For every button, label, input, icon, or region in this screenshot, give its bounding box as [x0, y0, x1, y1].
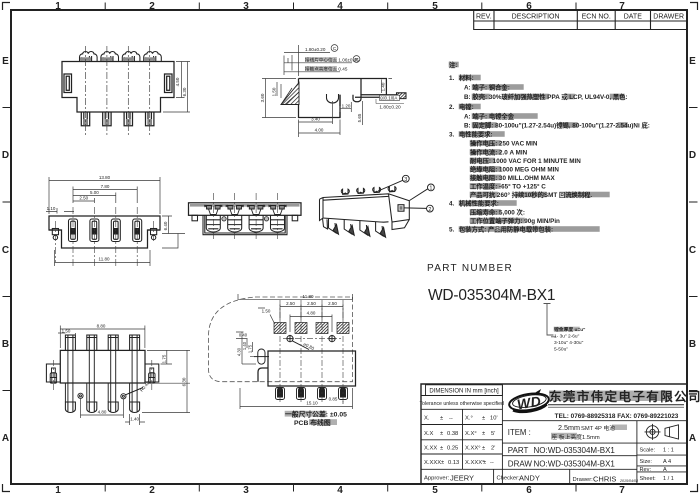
- svg-text:产品可抗 260° 持续10秒的SMT 回流焕制程.: 产品可抗 260° 持续10秒的SMT 回流焕制程.: [470, 190, 592, 199]
- svg-text:3-10u" 4-30u": 3-10u" 4-30u": [554, 340, 584, 346]
- svg-text:2: 2: [149, 485, 155, 495]
- svg-text:绝缘电阻: 1000 MEG OHM MIN: 绝缘电阻: 1000 MEG OHM MIN: [470, 165, 559, 174]
- svg-text:1- 3u" 2-6u": 1- 3u" 2-6u": [554, 334, 580, 340]
- svg-text:X.: X.: [424, 416, 430, 422]
- svg-text:3.: 3.: [449, 132, 455, 139]
- svg-text:5.00: 5.00: [90, 190, 99, 195]
- svg-text:X.°: X.°: [465, 416, 473, 422]
- svg-text:2015/04/08: 2015/04/08: [619, 479, 638, 483]
- svg-text:2': 2': [491, 446, 495, 452]
- svg-text:1.50: 1.50: [272, 87, 277, 96]
- svg-text:X.XXX: X.XXX: [424, 460, 441, 466]
- svg-text:11.80: 11.80: [99, 257, 110, 262]
- svg-text:4.30: 4.30: [237, 347, 242, 356]
- svg-text:3.60: 3.60: [260, 93, 265, 102]
- svg-text:6: 6: [526, 1, 532, 12]
- svg-text:DRAW: DRAW: [508, 459, 533, 468]
- svg-text:A: 端子: 铜合金:: A: 端子: 铜合金:: [464, 83, 510, 92]
- svg-text:1.80±0.20: 1.80±0.20: [305, 47, 326, 52]
- svg-text:3: 3: [404, 177, 407, 183]
- svg-text:X.XX: X.XX: [424, 446, 437, 452]
- svg-text:0.13: 0.13: [448, 460, 459, 466]
- svg-text:5.65: 5.65: [357, 113, 362, 122]
- svg-text:ITEM :: ITEM :: [508, 428, 531, 437]
- svg-text:E: E: [689, 56, 696, 67]
- svg-text:2: 2: [149, 1, 155, 12]
- svg-text:1.40: 1.40: [242, 341, 247, 350]
- svg-text:东莞市伟定电子有限公司: 东莞市伟定电子有限公司: [549, 389, 700, 404]
- svg-text:0.85: 0.85: [329, 397, 338, 402]
- svg-text:SMT 4P 电池: SMT 4P 电池: [581, 424, 615, 432]
- svg-text:5': 5': [491, 431, 495, 437]
- svg-text:Checker:: Checker:: [497, 476, 521, 482]
- svg-text:±: ±: [482, 416, 485, 422]
- svg-text:Rev:: Rev:: [640, 467, 652, 473]
- svg-text:0.25: 0.25: [447, 446, 458, 452]
- svg-text:11.80: 11.80: [303, 294, 314, 299]
- svg-text:A: A: [663, 467, 667, 473]
- svg-text:±: ±: [440, 446, 443, 452]
- svg-text:包装方式: 产品用防静电载带包装:: 包装方式: 产品用防静电载带包装:: [459, 225, 553, 234]
- svg-text:D: D: [689, 150, 696, 161]
- svg-text:机械性能要求:: 机械性能要求:: [459, 199, 499, 208]
- svg-text:6.30: 6.30: [182, 87, 187, 96]
- svg-text:电性能要求:: 电性能要求:: [459, 130, 493, 139]
- svg-text:座 板上高度1.5mm: 座 板上高度1.5mm: [551, 433, 599, 441]
- svg-text:1.20: 1.20: [342, 104, 351, 109]
- svg-text:±: ±: [482, 431, 485, 437]
- svg-text:±: ±: [440, 416, 443, 422]
- svg-text:6.40: 6.40: [163, 221, 168, 230]
- svg-text:7.80: 7.80: [101, 184, 110, 189]
- svg-text:7: 7: [619, 1, 625, 12]
- svg-text:NO:WD-035304M-BX1: NO:WD-035304M-BX1: [534, 446, 616, 455]
- svg-text:耐电压: 1000 VAC FOR 1 MINUTE MIN: 耐电压: 1000 VAC FOR 1 MINUTE MIN: [470, 156, 581, 165]
- svg-text:2.5mm: 2.5mm: [558, 423, 580, 432]
- svg-text:PART NUMBER: PART NUMBER: [427, 263, 513, 274]
- svg-text:一般尺寸公差: ±0.05: 一般尺寸公差: ±0.05: [285, 410, 347, 419]
- svg-text:1: 1: [429, 186, 432, 192]
- svg-text:Size:: Size:: [640, 459, 653, 465]
- svg-text:ECN NO.: ECN NO.: [582, 14, 611, 21]
- svg-text:Scale:: Scale:: [640, 448, 656, 454]
- svg-text:3.40: 3.40: [311, 117, 320, 122]
- svg-text:1.80±0.20: 1.80±0.20: [379, 105, 401, 111]
- svg-text:1.40: 1.40: [130, 417, 139, 422]
- svg-text:±: ±: [483, 460, 486, 466]
- svg-text:C: C: [689, 245, 696, 256]
- svg-text:15.10: 15.10: [306, 401, 318, 406]
- svg-text:B: B: [2, 339, 9, 350]
- svg-text:4.00: 4.00: [315, 128, 324, 133]
- svg-text:4: 4: [337, 1, 343, 12]
- svg-text:PART: PART: [508, 446, 529, 455]
- svg-text:1.10: 1.10: [47, 206, 56, 211]
- svg-text:1.: 1.: [449, 75, 455, 82]
- svg-text:DESCRIPTION: DESCRIPTION: [512, 14, 560, 21]
- svg-text:1: 1: [55, 1, 61, 12]
- svg-text:X.XX°: X.XX°: [465, 446, 481, 452]
- svg-text:TEL: 0769-88925318 FAX: 0769-: TEL: 0769-88925318 FAX: 0769-89221023: [555, 413, 679, 420]
- svg-text:JEERY: JEERY: [450, 474, 474, 483]
- svg-text:0.40: 0.40: [239, 333, 248, 338]
- svg-text:操作电压: 250 VAC MIN: 操作电压: 250 VAC MIN: [470, 139, 538, 148]
- svg-text:1 : 1: 1 : 1: [663, 448, 674, 454]
- svg-text:8.80: 8.80: [97, 324, 106, 329]
- svg-text:4.50: 4.50: [175, 77, 180, 86]
- svg-text:接线片中心位置 1.06±0.05: 接线片中心位置 1.06±0.05: [305, 56, 359, 63]
- svg-text:13.80: 13.80: [99, 175, 111, 180]
- svg-text:X.X°: X.X°: [465, 431, 477, 437]
- svg-text:--: --: [490, 460, 494, 466]
- svg-text:压缩寿命: 5,000 次:: 压缩寿命: 5,000 次:: [470, 208, 525, 217]
- svg-text:DRAWER: DRAWER: [653, 14, 684, 21]
- svg-text:NO:WD-035304M-BX1: NO:WD-035304M-BX1: [534, 459, 616, 468]
- svg-text:2.50: 2.50: [328, 301, 337, 306]
- svg-text:A: A: [689, 433, 696, 444]
- svg-text:0.38: 0.38: [447, 431, 458, 437]
- svg-text:6: 6: [526, 485, 532, 495]
- svg-text:4.80: 4.80: [98, 410, 107, 415]
- svg-text:2.50: 2.50: [79, 196, 88, 201]
- svg-text:1 / 1: 1 / 1: [663, 476, 674, 482]
- svg-text:2.: 2.: [449, 104, 455, 111]
- svg-text:5: 5: [432, 485, 438, 495]
- svg-text:C: C: [2, 245, 9, 256]
- svg-text:±: ±: [440, 431, 443, 437]
- svg-text:接触电阻: 30 MILL.OHM MAX: 接触电阻: 30 MILL.OHM MAX: [470, 173, 555, 182]
- svg-text:注:: 注:: [449, 60, 457, 69]
- svg-text:Tolerance unless otherwise spe: Tolerance unless otherwise specified: [419, 401, 504, 407]
- svg-text:CHRIS: CHRIS: [593, 475, 616, 484]
- svg-text:5.: 5.: [449, 227, 455, 234]
- svg-text:B: 胶壳: 30%玻纤加强热塑性 PPA 或 LCP, U: B: 胶壳: 30%玻纤加强热塑性 PPA 或 LCP, UL94V-0, 黑色…: [464, 92, 628, 101]
- svg-text:3: 3: [243, 485, 249, 495]
- svg-text:4.80: 4.80: [307, 311, 316, 316]
- svg-text:操作电流: 2.0 A MIN: 操作电流: 2.0 A MIN: [470, 148, 528, 157]
- svg-text:材料:: 材料:: [459, 73, 474, 82]
- svg-text:B: 固定脚: 80-100u"(1.27-2.54u)镗锡: B: 固定脚: 80-100u"(1.27-2.54u)镗锡, 80-100u"…: [464, 121, 650, 130]
- svg-text:1: 1: [55, 485, 61, 495]
- svg-text:X.X: X.X: [424, 431, 433, 437]
- svg-text:±: ±: [482, 446, 485, 452]
- svg-text:3: 3: [243, 1, 249, 12]
- svg-text:5-50u": 5-50u": [554, 347, 568, 353]
- svg-text:1.75: 1.75: [162, 354, 167, 363]
- svg-text:2.50: 2.50: [307, 301, 316, 306]
- svg-text:镗金厚度 u=u": 镗金厚度 u=u": [554, 326, 585, 333]
- svg-text:X.XXX°: X.XXX°: [465, 460, 484, 466]
- svg-text:E: E: [2, 56, 9, 67]
- svg-text:7: 7: [619, 485, 625, 495]
- svg-text:工作位置端子弹力: 90g MIN/Pin: 工作位置端子弹力: 90g MIN/Pin: [470, 216, 560, 225]
- svg-text:A: A: [2, 433, 9, 444]
- svg-text:ANDY: ANDY: [519, 474, 540, 483]
- svg-text:2: 2: [428, 207, 431, 213]
- svg-text:4.: 4.: [449, 201, 455, 208]
- svg-text:±: ±: [441, 460, 444, 466]
- svg-text:5: 5: [432, 1, 438, 12]
- svg-text:电镗:: 电镗:: [459, 102, 474, 111]
- svg-text:A 4: A 4: [663, 459, 671, 465]
- svg-text:DIMENSION IN mm [inch]: DIMENSION IN mm [inch]: [429, 389, 499, 395]
- svg-text:工作温度: -65° TO +125° C: 工作温度: -65° TO +125° C: [470, 182, 546, 191]
- svg-text:1.75: 1.75: [248, 344, 253, 353]
- svg-text:Sheet:: Sheet:: [640, 476, 657, 482]
- svg-text:WD-035304M-BX1: WD-035304M-BX1: [428, 287, 555, 304]
- svg-text:2.50: 2.50: [286, 301, 295, 306]
- svg-text:--: --: [449, 416, 453, 422]
- svg-text:PCB 布线图: PCB 布线图: [294, 418, 331, 427]
- svg-text:6.30: 6.30: [182, 377, 187, 386]
- svg-text:REV.: REV.: [476, 14, 492, 21]
- svg-text:D: D: [2, 150, 9, 161]
- svg-text:Drawer:: Drawer:: [573, 477, 594, 483]
- svg-text:接触点高度位置 0.45: 接触点高度位置 0.45: [305, 65, 348, 72]
- svg-text:DATE: DATE: [624, 14, 642, 21]
- svg-text:1.50: 1.50: [62, 329, 71, 334]
- svg-text:E: E: [355, 57, 358, 62]
- svg-text:10': 10': [490, 416, 498, 422]
- svg-text:B: B: [689, 339, 696, 350]
- svg-text:A: 端子: 电镗全金: A: 端子: 电镗全金: [464, 112, 515, 121]
- svg-text:4: 4: [337, 485, 343, 495]
- svg-text:⊙|0.10|A: ⊙|0.10|A: [380, 96, 398, 101]
- svg-text:1.50: 1.50: [262, 309, 271, 314]
- svg-text:Approver:: Approver:: [424, 476, 450, 482]
